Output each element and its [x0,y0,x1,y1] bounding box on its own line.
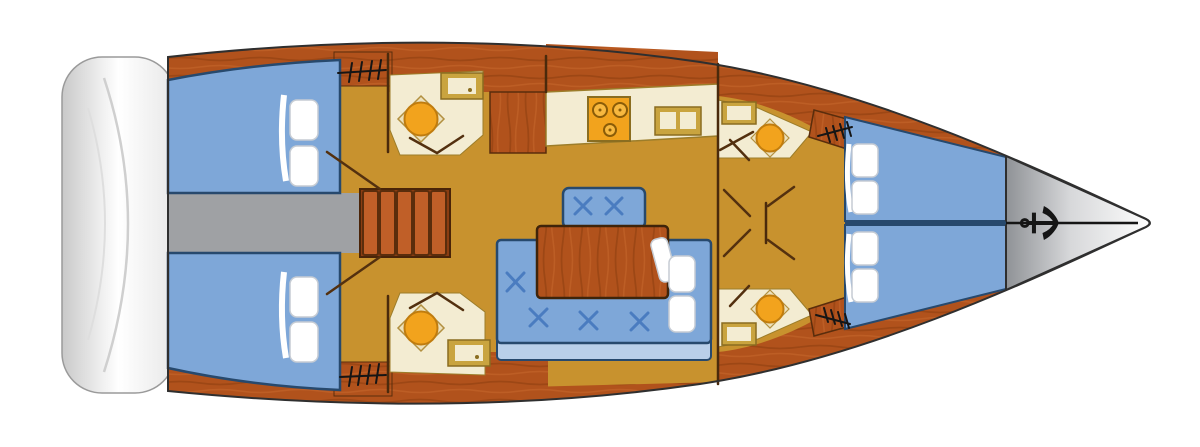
aft-cabin-port-berth [168,60,340,193]
salon-bench [563,188,645,228]
aft-hatch-block-port [334,52,392,86]
aft-head-starboard [390,293,490,375]
aft-hatch-block-starboard [334,362,392,396]
stern-swim-platform [62,57,175,393]
companionway-corridor [168,193,366,253]
sink-icon [722,323,756,345]
galley-cabinet [490,92,546,153]
sink-icon [441,73,483,99]
galley-sink-icon [655,107,701,135]
salon-table [537,226,668,298]
aft-cabin-starboard-berth [168,253,340,390]
companionway-steps [360,189,450,257]
sink-icon [448,340,490,366]
boat-floorplan [0,0,1200,447]
floorplan-svg [0,0,1200,447]
stove-icon [588,97,630,141]
sink-icon [722,102,756,124]
aft-head-port [390,71,483,155]
